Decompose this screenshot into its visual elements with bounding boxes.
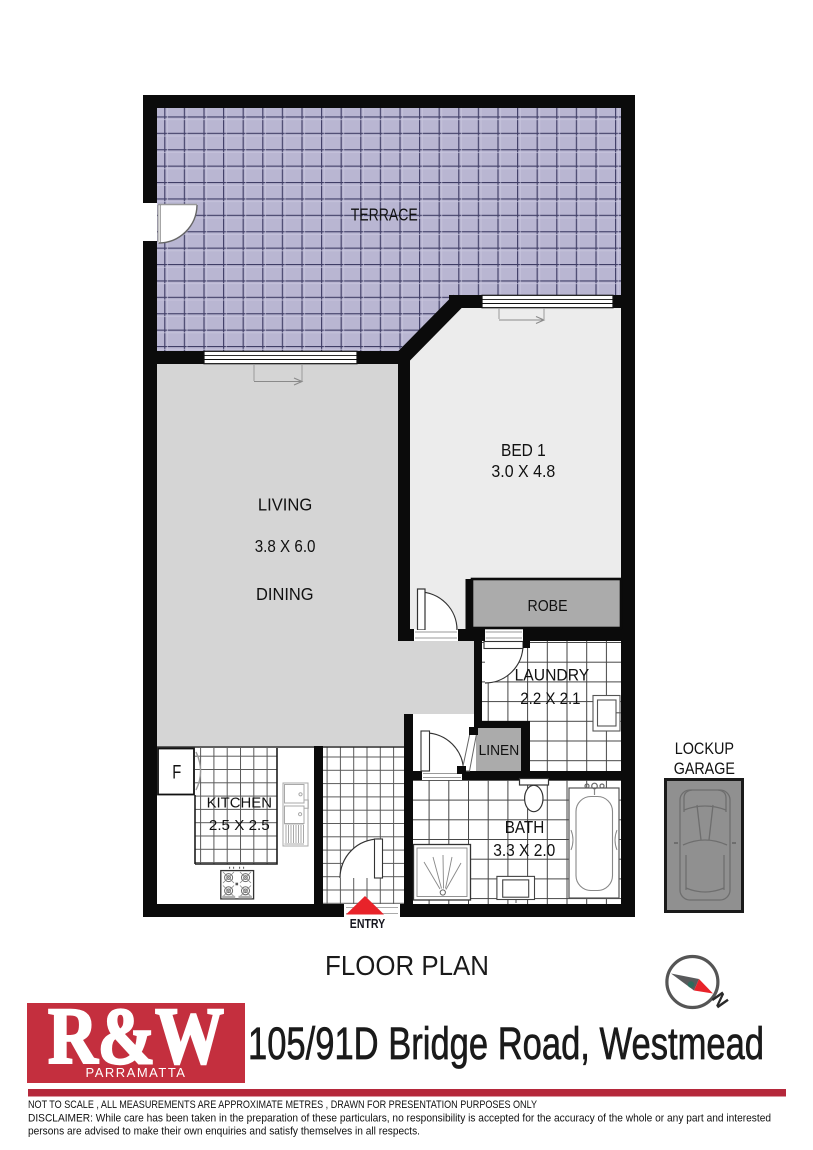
svg-text:2.5 X 2.5: 2.5 X 2.5 — [209, 817, 270, 834]
svg-text:F: F — [172, 762, 181, 783]
svg-text:GARAGE: GARAGE — [674, 759, 735, 778]
svg-text:KITCHEN: KITCHEN — [207, 795, 272, 812]
svg-text:3.3 X 2.0: 3.3 X 2.0 — [493, 840, 555, 860]
svg-text:2.2 X 2.1: 2.2 X 2.1 — [520, 690, 580, 708]
svg-text:LINEN: LINEN — [479, 742, 520, 759]
svg-text:DISCLAIMER: While care has be: DISCLAIMER: While care has been taken in… — [28, 1113, 771, 1125]
svg-text:TERRACE: TERRACE — [351, 205, 418, 225]
svg-text:FLOOR PLAN: FLOOR PLAN — [325, 950, 489, 981]
svg-text:PARRAMATTA: PARRAMATTA — [86, 1065, 187, 1080]
svg-text:ENTRY: ENTRY — [350, 916, 386, 931]
svg-text:persons are advised to make th: persons are advised to make their own en… — [28, 1126, 420, 1138]
svg-text:NOT TO SCALE , ALL MEASUREMENT: NOT TO SCALE , ALL MEASUREMENTS ARE APPR… — [28, 1099, 538, 1111]
svg-text:3.8 X 6.0: 3.8 X 6.0 — [255, 536, 316, 556]
svg-text:LAUNDRY: LAUNDRY — [515, 666, 590, 684]
svg-text:105/91D Bridge Road, Westmead: 105/91D Bridge Road, Westmead — [248, 1018, 764, 1069]
svg-text:BATH: BATH — [505, 817, 545, 837]
svg-text:BED 1: BED 1 — [501, 440, 546, 460]
svg-text:LIVING: LIVING — [258, 494, 312, 514]
svg-text:3.0 X 4.8: 3.0 X 4.8 — [491, 461, 555, 481]
svg-text:LOCKUP: LOCKUP — [675, 739, 734, 758]
svg-text:ROBE: ROBE — [528, 598, 568, 615]
svg-text:DINING: DINING — [256, 584, 314, 604]
